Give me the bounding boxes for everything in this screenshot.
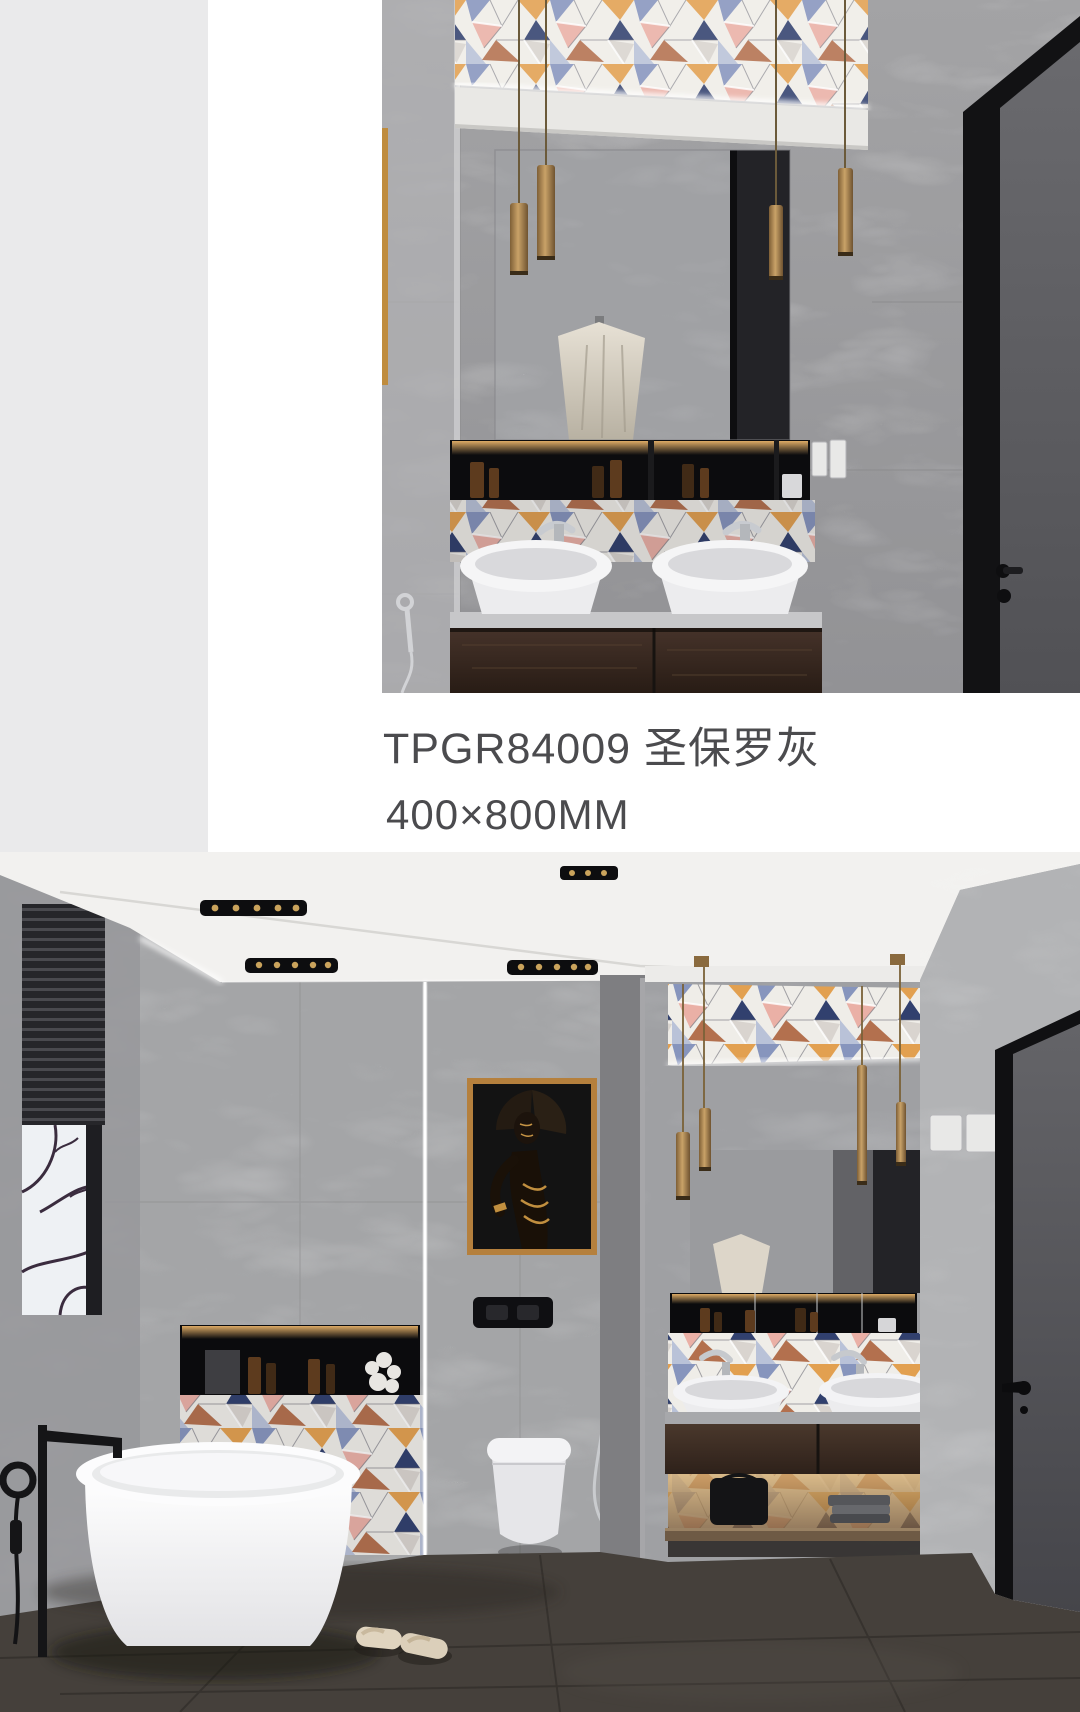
page: TPGR84009 圣保罗灰 400×800MM (0, 0, 1080, 1712)
left-gutter-panel (0, 0, 208, 852)
product-title: TPGR84009 圣保罗灰 (383, 714, 820, 776)
vessel-sink-left (460, 540, 612, 614)
toiletry-bag (710, 1478, 768, 1525)
product-size: 400×800MM (386, 791, 630, 839)
left-wall-column (382, 0, 460, 693)
mosaic-accent-band-top (455, 0, 868, 150)
gray-door (963, 16, 1080, 693)
vessel-sink-right (652, 540, 808, 614)
bathroom-full-render (0, 852, 1080, 1712)
door-reflection (730, 150, 790, 440)
product-scene-bottom: WINTO 宏陶陶瓷 宏陶陶瓷 WINTO CERAMICS (0, 852, 1080, 1712)
flush-plate (473, 1297, 553, 1328)
gray-door (1013, 1024, 1080, 1612)
door-reflection (873, 1150, 923, 1293)
folded-towels (828, 1495, 890, 1523)
bathroom-vanity-render (382, 0, 1080, 693)
window-blinds (22, 904, 105, 1125)
freestanding-bathtub (50, 1442, 380, 1680)
right-wall-door (920, 864, 1080, 1630)
product-scene-top (382, 0, 1080, 693)
light-switch (930, 1114, 1005, 1152)
gold-frame-sliver (382, 128, 388, 385)
vanity-cabinet (450, 628, 822, 693)
mosaic-accent-band (668, 984, 923, 1065)
window-frame (86, 1125, 102, 1315)
partition-wall (600, 975, 645, 1595)
towel-reflection (713, 1234, 770, 1293)
wall-artwork (467, 1078, 597, 1255)
storage-niche (670, 1293, 917, 1333)
countertop (450, 612, 822, 628)
storage-niche (450, 440, 810, 500)
